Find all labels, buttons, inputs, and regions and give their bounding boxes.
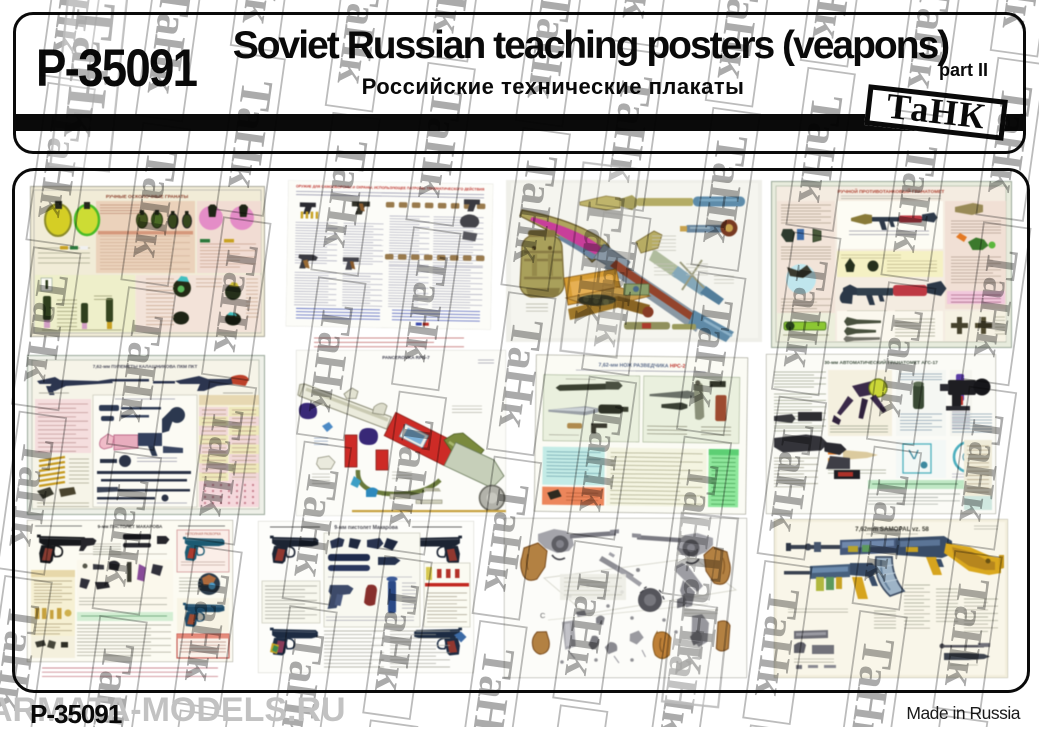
svg-text:НЕПОЛНАЯ РАЗБОРКА: НЕПОЛНАЯ РАЗБОРКА <box>185 532 221 536</box>
svg-text:C: C <box>540 611 546 620</box>
svg-text:7,62mm SAMOPAL vz. 58: 7,62mm SAMOPAL vz. 58 <box>855 526 929 533</box>
svg-text:9-мм пистолет Макарова: 9-мм пистолет Макарова <box>334 525 398 531</box>
svg-text:7,62-мм НОЖ РАЗВЕДЧИКА НРС-2: 7,62-мм НОЖ РАЗВЕДЧИКА НРС-2 <box>599 362 686 369</box>
svg-text:9-мм ПИСТОЛЕТ МАКАРОВА: 9-мм ПИСТОЛЕТ МАКАРОВА <box>98 524 163 529</box>
svg-text:7,62-мм ПУЛЕМЕТЫ КАЛАШНИКОВА П: 7,62-мм ПУЛЕМЕТЫ КАЛАШНИКОВА ПКМ ПКТ <box>93 364 198 369</box>
svg-text:PANCEROVKA RPG-7: PANCEROVKA RPG-7 <box>382 355 430 360</box>
svg-text:РУЧНЫЕ ОСКОЛОЧНЫЕ ГРАНАТЫ: РУЧНЫЕ ОСКОЛОЧНЫЕ ГРАНАТЫ <box>106 194 189 200</box>
